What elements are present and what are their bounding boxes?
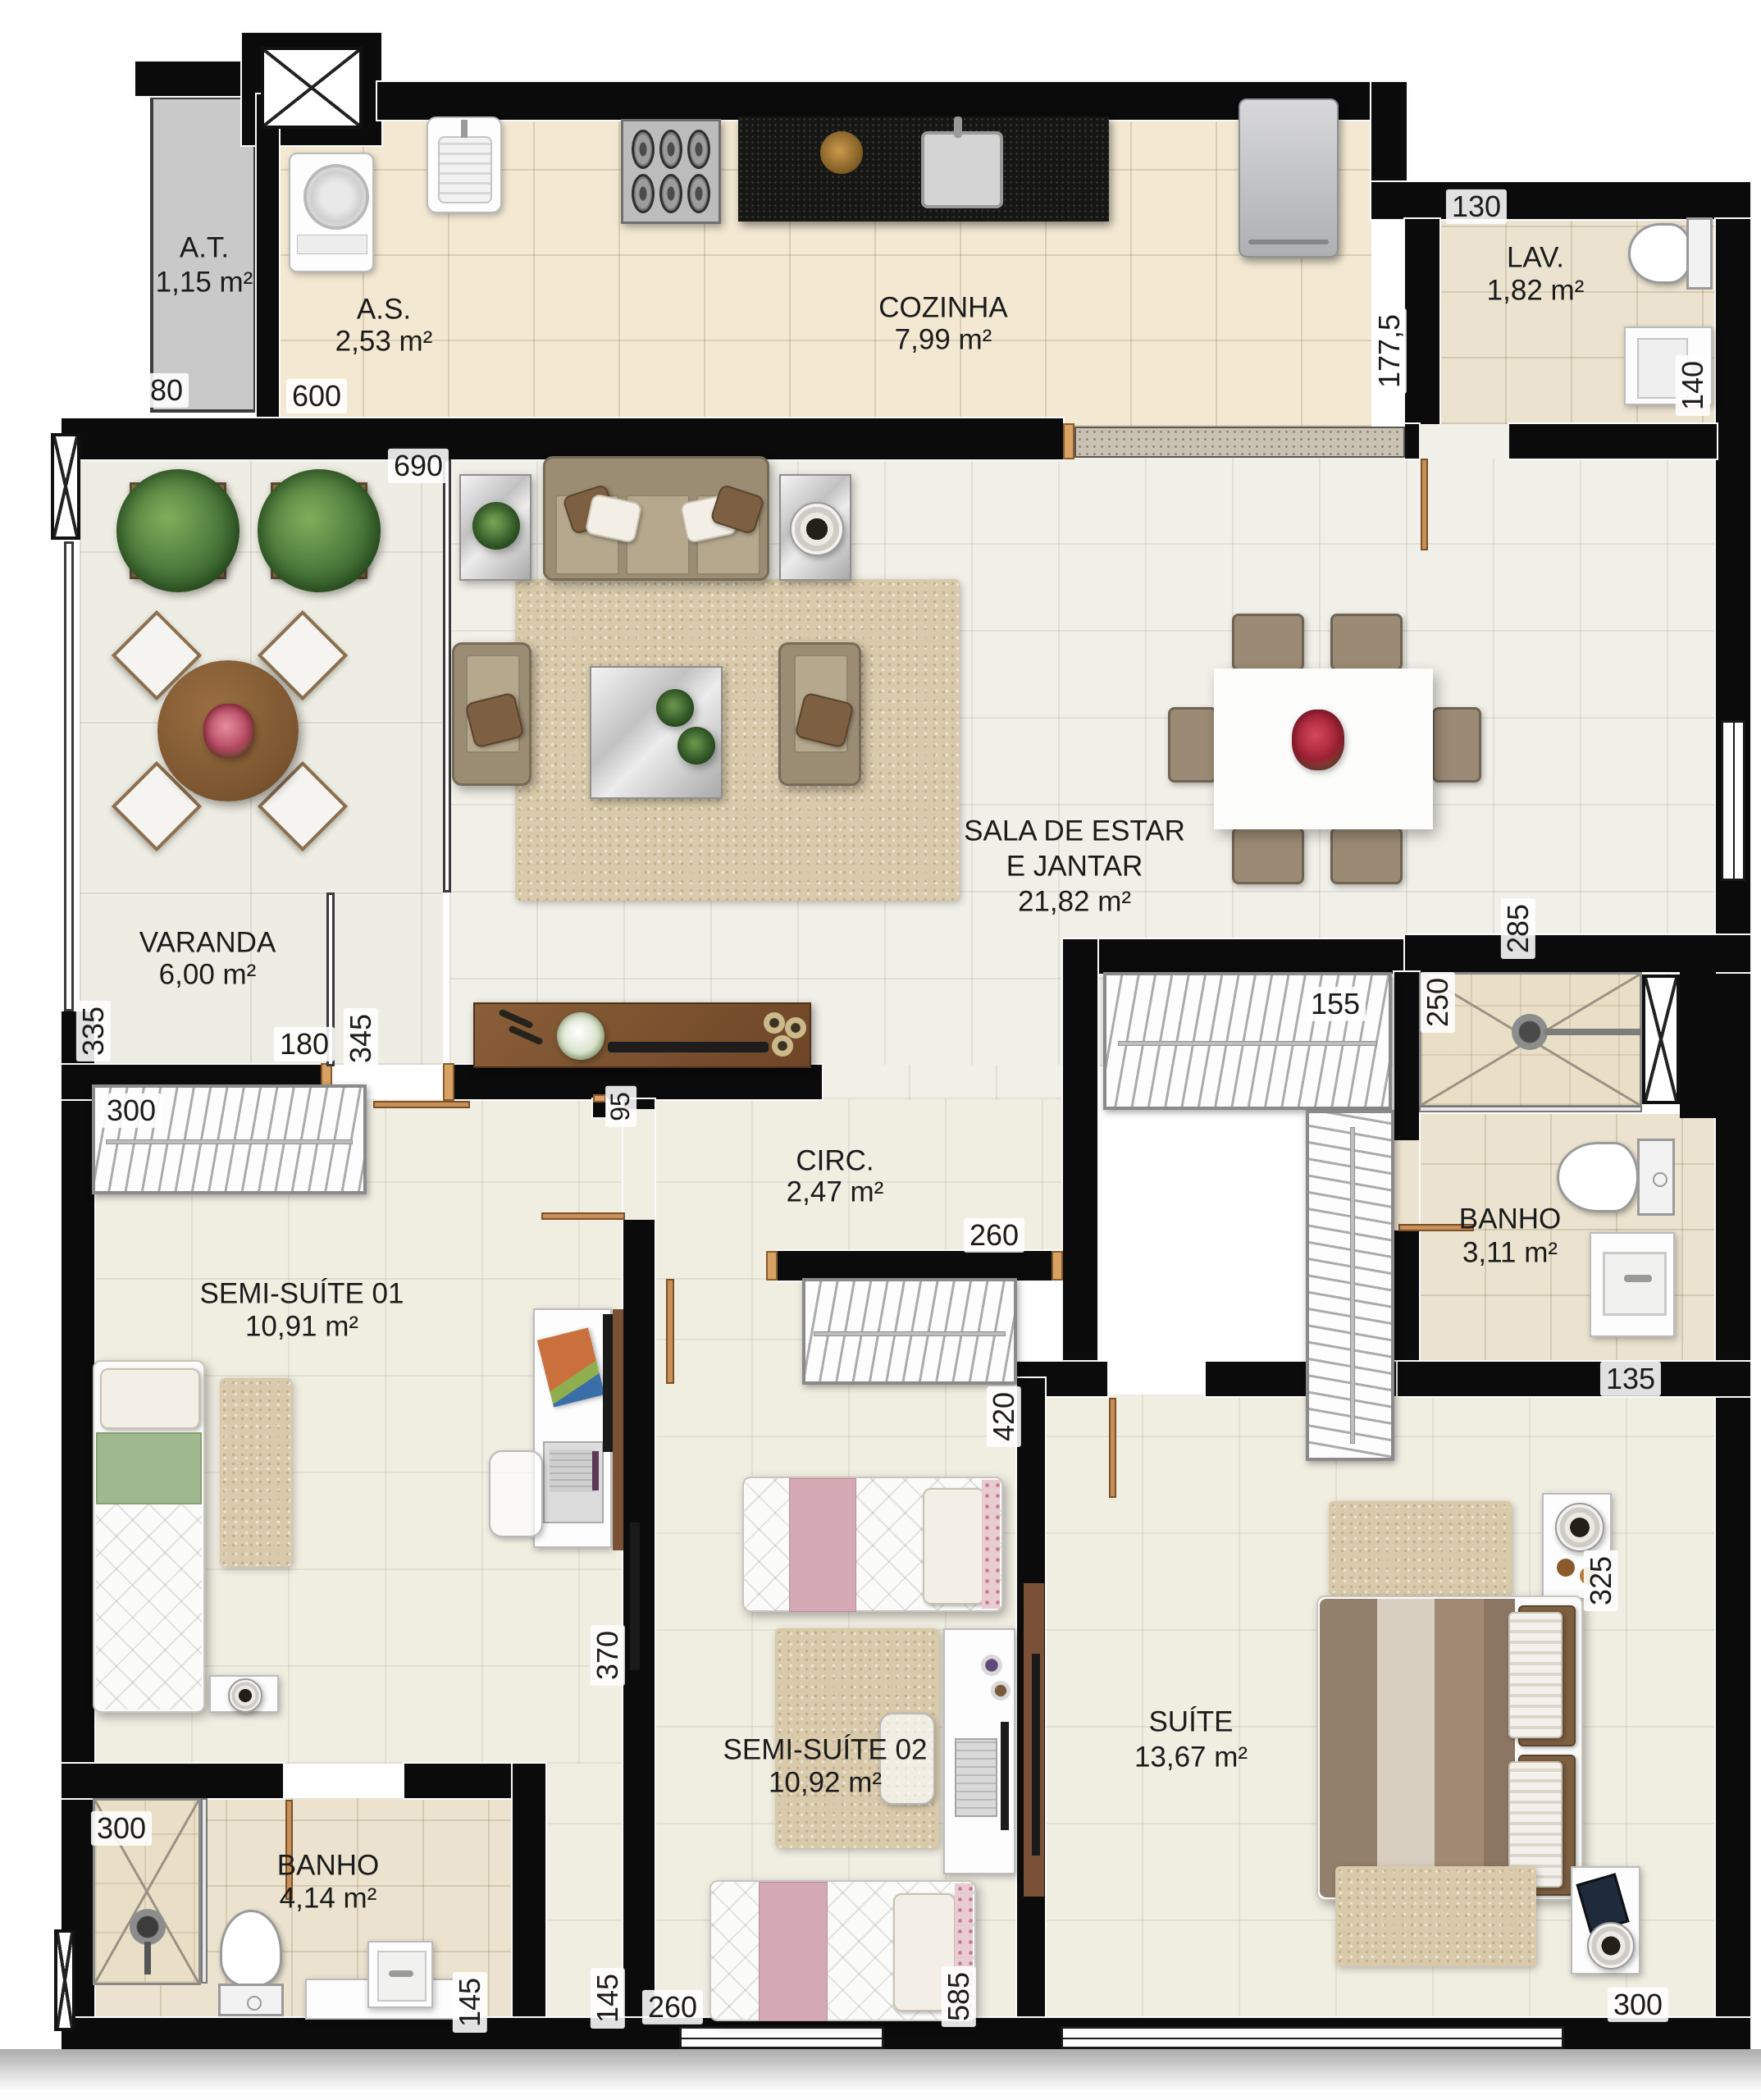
wall [1063,939,1097,1395]
tv-icon [1032,1654,1040,1856]
dim-kitchen-depth: 177,5 [1372,308,1407,394]
dim-closet-semi1: 300 [101,1093,162,1128]
burner-icon [632,130,655,169]
bed-semi-suite-01 [93,1360,205,1713]
bed-suite [1316,1596,1583,1901]
plant-icon [472,502,520,550]
kitchen-sink [921,131,1003,208]
plant-icon [656,689,694,727]
mug-icon [981,1655,1002,1676]
plant-icon [116,469,240,592]
wall [1405,219,1439,424]
wall [1716,219,1750,2018]
nightstand-suite-2 [1571,1866,1640,1974]
sideboard [473,1002,811,1068]
plant-icon [677,727,715,765]
door-jamb [766,1251,778,1281]
toilet-banho-social [220,1910,282,1987]
room-area-varanda: 6,00 m² [159,958,257,990]
closet-suite-vertical [1306,1110,1394,1461]
soundbar-icon [608,1042,769,1052]
dining-chair [1232,827,1304,884]
room-area-sala: 21,82 m² [1018,885,1131,917]
door-leaf-semi1 [541,1212,625,1220]
window-elevator-shaft [261,47,363,129]
wall [377,82,1371,120]
remote-icon [508,1025,543,1045]
monitor-icon [1001,1722,1009,1830]
window-banho-social [54,1929,75,2031]
toilet-tank-banho-social [218,1984,284,2016]
keyboard-icon [955,1738,997,1817]
burner-icon [632,174,655,213]
dim-semi2-door: 260 [642,1990,703,2025]
room-area-as: 2,53 m² [335,325,433,357]
sofa [543,456,769,581]
dim-suite-width: 300 [1608,1988,1668,2022]
room-area-semi2: 10,92 m² [769,1766,882,1798]
varanda-glass-rail [64,541,74,1011]
bed2-semi-suite-02 [709,1880,976,2021]
sideboard-flowers-icon [557,1012,604,1060]
sink-banho-suites [1590,1232,1675,1337]
armchair [452,642,531,786]
door-leaf-semi2 [666,1279,674,1384]
dim-circ-door: 260 [964,1218,1024,1253]
wall [1394,1362,1750,1396]
dim-service-width: 600 [286,379,347,413]
magazines-icon [537,1328,604,1408]
dim-suite-side: 325 [1584,1550,1618,1611]
door-jamb [1052,1251,1063,1281]
room-area-at: 1,15 m² [156,266,253,298]
toilet-lav [1628,223,1692,284]
wall [1680,972,1716,1118]
wall [1371,182,1750,219]
window-banho-suites [1642,975,1680,1104]
bowl-icon [764,1012,785,1034]
dim-hall-wall: 95 [605,1086,636,1127]
dim-varanda-door: 180 [274,1027,335,1061]
shower-glass [1419,1106,1642,1112]
bowl-icon [785,1017,806,1039]
dim-banho-suites-width: 135 [1600,1362,1661,1396]
dining-chair [1330,827,1403,884]
dim-lav-width: 130 [1446,189,1507,224]
plant-icon [258,469,381,592]
rug-suite-top [1329,1501,1512,1596]
burner-icon [687,174,710,213]
bowl-icon [1557,1559,1575,1577]
dim-shower-suites: 250 [1421,972,1455,1033]
closet-semi-suite-02 [802,1278,1017,1385]
window-varanda-top-left [51,433,80,540]
toilet-tank-lav [1686,217,1713,290]
laundry-sink [427,116,502,213]
speaker-icon [228,1678,262,1713]
washing-machine [289,153,374,272]
dim-aparador-wall: 345 [344,1008,378,1069]
dining-chair [1330,614,1403,671]
room-label-circ: CIRC. [796,1144,874,1176]
door-opening-banho-suites [1394,1140,1419,1230]
desk-chair [489,1450,543,1537]
dim-sala-right: 285 [1501,898,1535,959]
mug-icon [991,1681,1011,1701]
dim-semi1-depth: 370 [591,1625,625,1686]
room-label-sala-2: E JANTAR [1006,850,1143,882]
remote-icon [498,1008,533,1029]
wall [1405,424,1419,459]
room-area-cozinha: 7,99 m² [895,323,992,355]
floor-plan: A.T. 1,15 m² 80 A.S. 2,53 m² 600 COZINHA… [0,0,1761,2100]
room-area-semi1: 10,91 m² [245,1310,358,1342]
dining-chair [1168,707,1217,783]
kitchen-counter [738,116,1109,221]
varanda-sliding-door [443,459,451,892]
stove [621,119,721,224]
room-label-banho-social: BANHO [277,1849,379,1881]
room-label-semi2: SEMI-SUÍTE 02 [723,1733,928,1765]
counter-plant-icon [820,131,863,174]
curtain-rod [373,1101,470,1108]
burner-icon [687,130,710,169]
window-semi-suite-02 [679,2026,884,2049]
dim-varanda-depth: 335 [76,1001,111,1061]
dim-vestibule: 145 [591,1968,625,2029]
armchair [778,642,861,786]
door-leaf-suite [1109,1398,1116,1498]
room-label-as: A.S. [357,293,411,325]
dining-flowers-icon [1292,710,1344,770]
shower-glass [201,1798,208,1984]
wall [778,1251,1063,1281]
dim-at-width: 80 [144,373,189,408]
room-label-sala-1: SALA DE ESTAR [964,815,1185,847]
speaker-icon [790,502,844,556]
rug-semi-suite-01 [220,1378,292,1567]
room-area-banho-suites: 3,11 m² [1462,1236,1558,1268]
door-jamb [1063,423,1074,459]
faucet-icon [954,116,962,138]
dim-lav-depth: 140 [1676,355,1710,416]
bed1-semi-suite-02 [742,1477,1003,1612]
plan-drop-shadow [0,2049,1761,2100]
wall [62,1065,94,2018]
tv-icon [630,1522,640,1670]
door-opening-lav [1419,424,1509,459]
room-area-banho-social: 4,14 m² [280,1882,377,1914]
shower-head-icon [130,1909,166,1945]
room-label-lav: LAV. [1507,241,1564,273]
door-jamb [443,1063,454,1101]
wall [62,1764,283,1798]
burner-icon [659,174,682,213]
room-label-varanda: VARANDA [139,926,276,958]
door-jamb [593,1094,606,1102]
laptop-icon [543,1441,604,1523]
toilet-banho-suites [1557,1142,1639,1212]
tv-icon [603,1314,613,1452]
window-suite [1061,2026,1564,2049]
desk-semi-suite-02 [943,1628,1015,1874]
wall [1063,939,1421,974]
dim-banho-counter: 145 [453,1972,487,2033]
room-label-semi1: SEMI-SUÍTE 01 [200,1277,404,1309]
dining-chair [1232,614,1304,671]
room-area-circ: 2,47 m² [787,1176,884,1207]
dining-chair [1432,707,1481,783]
rug-suite-bottom [1335,1866,1536,1966]
room-label-cozinha: COZINHA [878,291,1008,323]
dim-shower-social: 300 [91,1811,152,1846]
dim-sala-width: 690 [388,449,449,483]
tv-panel [613,1309,623,1550]
kitchen-passage-threshold [1074,427,1405,458]
wall [257,94,279,427]
shower-head-icon [1512,1014,1548,1050]
window-living-right [1721,720,1745,881]
table-flowers-icon [203,704,254,758]
floor-circ-opening [822,1065,1063,1099]
bowl-icon [772,1035,793,1057]
dim-closet-suite: 155 [1305,987,1366,1021]
wall [62,418,1063,459]
wall [404,1764,513,1798]
dim-semi2-depth: 585 [942,1966,976,2027]
dim-closet-semi2: 420 [987,1386,1021,1447]
room-area-lav: 1,82 m² [1487,274,1585,306]
desk-semi-suite-01 [533,1308,612,1548]
room-label-banho-suites: BANHO [1459,1203,1561,1235]
wall [1405,935,1750,972]
toilet-tank-banho-suites [1637,1139,1675,1216]
burner-icon [659,130,682,169]
room-area-suite: 13,67 m² [1134,1741,1248,1773]
room-label-at: A.T. [180,231,229,263]
living-rug [515,579,960,901]
room-label-suite: SUÍTE [1148,1705,1233,1737]
wall [1509,424,1717,459]
fridge [1239,98,1339,258]
wall [513,1764,545,2018]
door-leaf-lav [1421,459,1428,550]
sink-banho-social [367,1941,433,2008]
